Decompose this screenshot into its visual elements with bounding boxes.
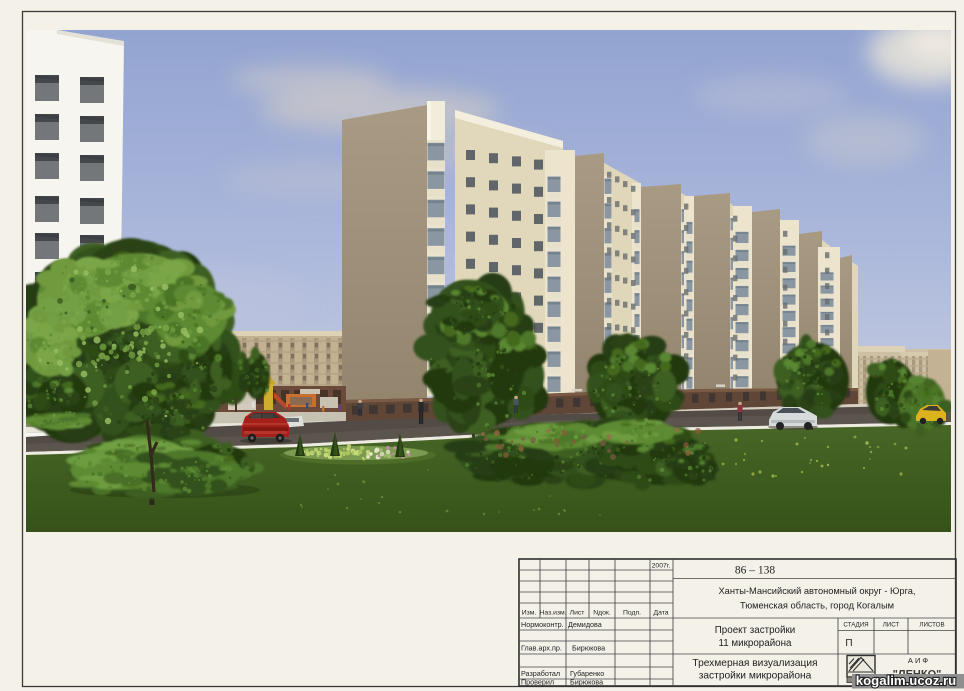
svg-text:Демидова: Демидова [568, 620, 602, 629]
svg-text:П: П [845, 638, 852, 649]
svg-text:86 – 138: 86 – 138 [735, 565, 776, 577]
svg-text:Бирюкова: Бирюкова [572, 644, 605, 653]
svg-text:kogalim.ucoz.ru: kogalim.ucoz.ru [856, 673, 956, 688]
svg-text:Наз.изм.: Наз.изм. [539, 610, 566, 617]
svg-text:Подп.: Подп. [623, 610, 641, 617]
svg-text:Нормоконтр.: Нормоконтр. [521, 620, 564, 629]
svg-text:Тюменская область, город Кога: Тюменская область, город Когалым [740, 601, 894, 611]
svg-text:Изм.: Изм. [522, 610, 537, 617]
svg-text:Глав.арх.пр.: Глав.арх.пр. [521, 644, 562, 653]
svg-text:Nдок.: Nдок. [593, 610, 611, 617]
svg-text:А И Ф: А И Ф [908, 656, 929, 665]
svg-text:СТАДИЯ: СТАДИЯ [843, 622, 868, 629]
svg-text:Лист: Лист [570, 610, 585, 617]
svg-text:Ханты-Мансийский автономный ок: Ханты-Мансийский автономный округ - Юрга… [718, 586, 915, 596]
svg-text:ЛИСТОВ: ЛИСТОВ [919, 622, 944, 629]
svg-text:Проверил: Проверил [521, 678, 554, 687]
svg-text:Дата: Дата [653, 610, 668, 617]
svg-text:Бирюкова: Бирюкова [570, 678, 603, 687]
svg-text:Трехмерная визуализация: Трехмерная визуализация [692, 658, 817, 669]
svg-text:ЛИСТ: ЛИСТ [883, 622, 900, 629]
svg-text:застройки микрорайона: застройки микрорайона [699, 671, 812, 682]
svg-text:2007г.: 2007г. [652, 563, 671, 570]
svg-text:11 микрорайона: 11 микрорайона [719, 638, 793, 649]
svg-text:Проект застройки: Проект застройки [715, 625, 795, 636]
